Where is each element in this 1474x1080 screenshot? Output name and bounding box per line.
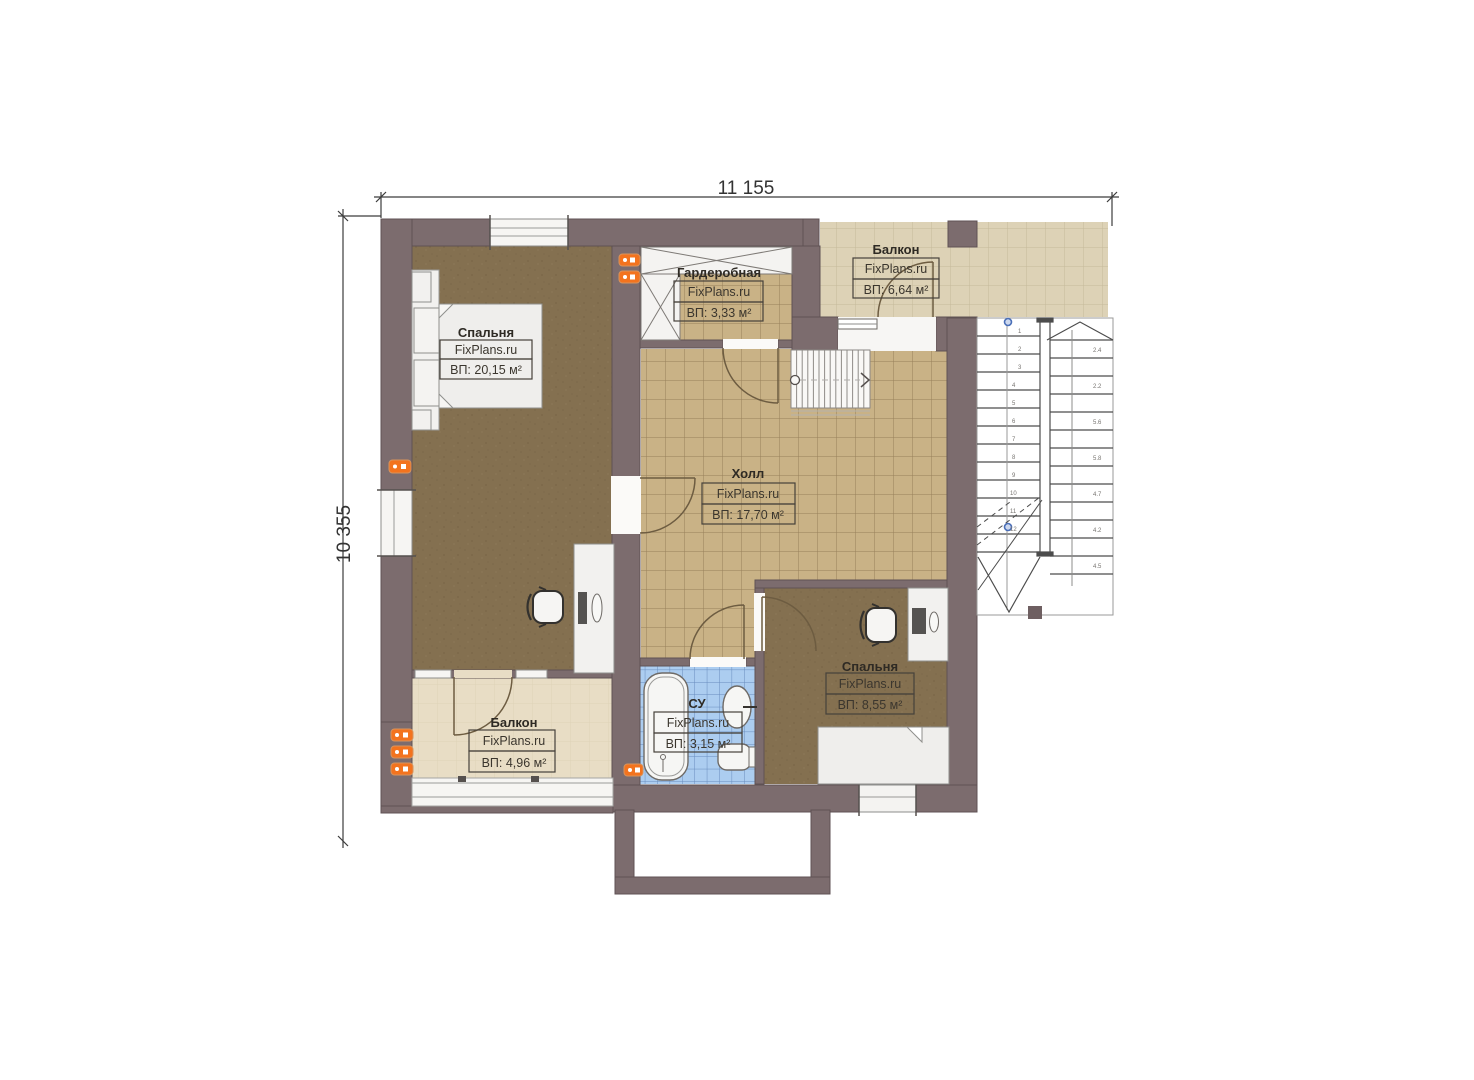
svg-text:Балкон: Балкон xyxy=(873,242,920,257)
svg-text:10: 10 xyxy=(1010,491,1017,497)
svg-text:Спальня: Спальня xyxy=(842,659,898,674)
svg-text:10 355: 10 355 xyxy=(334,505,355,563)
svg-text:ВП: 3,15 м²: ВП: 3,15 м² xyxy=(666,737,731,751)
svg-text:Спальня: Спальня xyxy=(458,325,514,340)
svg-text:4.7: 4.7 xyxy=(1093,492,1102,498)
svg-text:2.4: 2.4 xyxy=(1093,348,1102,354)
svg-text:ВП: 3,33 м²: ВП: 3,33 м² xyxy=(687,306,752,320)
svg-text:FixPlans.ru: FixPlans.ru xyxy=(865,262,928,276)
svg-text:2.2: 2.2 xyxy=(1093,384,1102,390)
svg-text:ВП: 8,55 м²: ВП: 8,55 м² xyxy=(838,698,903,712)
svg-text:FixPlans.ru: FixPlans.ru xyxy=(483,734,546,748)
svg-text:5.8: 5.8 xyxy=(1093,456,1102,462)
svg-text:Холл: Холл xyxy=(732,466,765,481)
svg-text:FixPlans.ru: FixPlans.ru xyxy=(688,285,751,299)
svg-text:Балкон: Балкон xyxy=(491,715,538,730)
svg-text:ВП: 20,15 м²: ВП: 20,15 м² xyxy=(450,363,522,377)
svg-text:4.2: 4.2 xyxy=(1093,528,1102,534)
svg-text:ВП: 4,96 м²: ВП: 4,96 м² xyxy=(482,756,547,770)
svg-text:4.5: 4.5 xyxy=(1093,564,1102,570)
svg-text:FixPlans.ru: FixPlans.ru xyxy=(839,677,902,691)
svg-text:12: 12 xyxy=(1010,527,1017,533)
svg-text:FixPlans.ru: FixPlans.ru xyxy=(455,343,518,357)
svg-text:ВП: 17,70 м²: ВП: 17,70 м² xyxy=(712,508,784,522)
svg-text:FixPlans.ru: FixPlans.ru xyxy=(667,716,730,730)
svg-text:Гардеробная: Гардеробная xyxy=(677,265,761,280)
svg-text:FixPlans.ru: FixPlans.ru xyxy=(717,487,780,501)
svg-text:СУ: СУ xyxy=(688,696,706,711)
svg-text:5.6: 5.6 xyxy=(1093,420,1102,426)
svg-text:ВП: 6,64 м²: ВП: 6,64 м² xyxy=(864,283,929,297)
svg-text:11: 11 xyxy=(1010,509,1017,515)
svg-text:11 155: 11 155 xyxy=(718,178,775,199)
